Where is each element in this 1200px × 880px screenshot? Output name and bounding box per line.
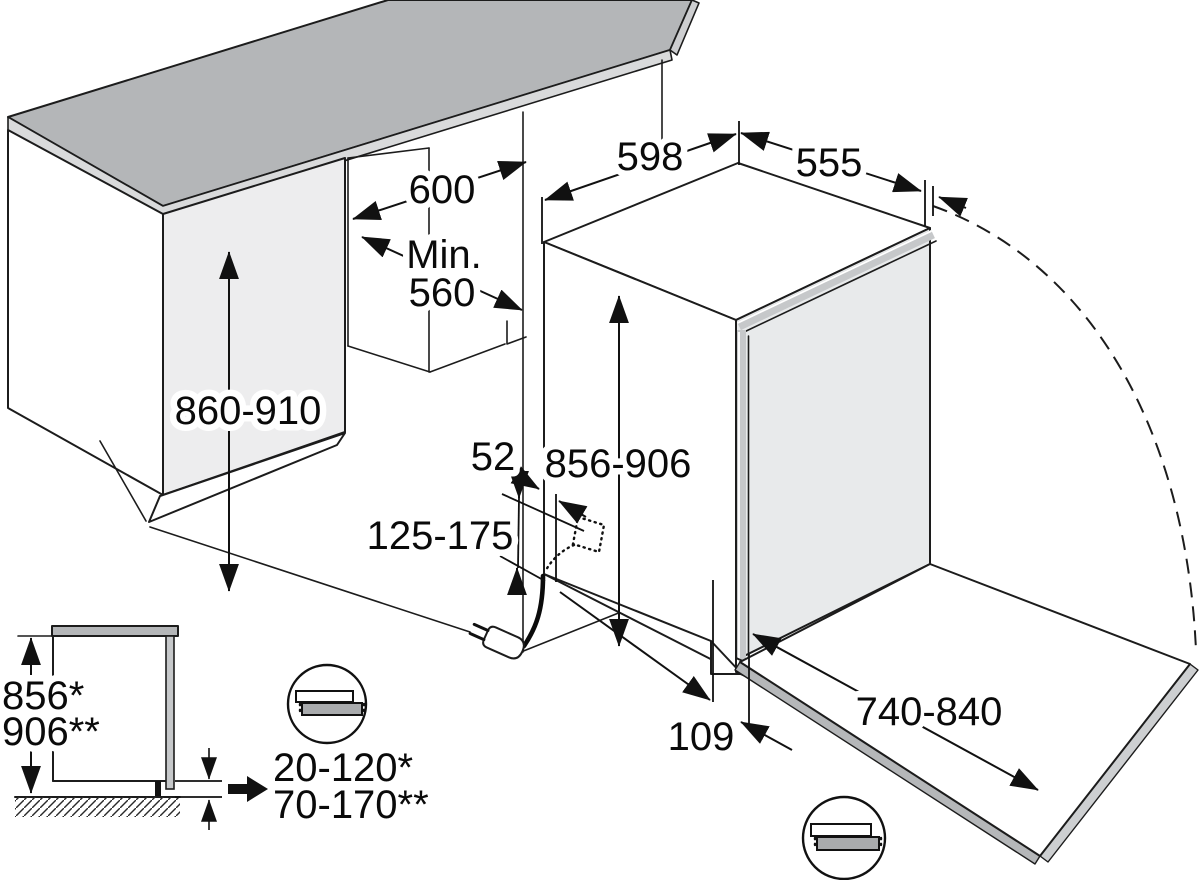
label-niche-width: 600 xyxy=(409,168,476,212)
inset-door-panel xyxy=(166,636,174,789)
dim-109-right xyxy=(741,722,792,750)
label-cord-cutout-height: 125-175 xyxy=(367,514,514,558)
dishwasher-installation-diagram: 598 555 600 Min. 560 860-910 52 856-906 … xyxy=(0,0,1200,880)
callout-furniture-panel xyxy=(296,691,353,702)
power-cord xyxy=(524,576,543,646)
label-door-panel-travel: 740-840 xyxy=(856,690,1003,734)
callout-furniture-panel xyxy=(811,824,871,836)
label-top-width: 598 xyxy=(617,135,684,179)
dim-125-175-line xyxy=(518,498,519,568)
label-cord-side-offset: 52 xyxy=(471,435,516,479)
inset-floor-hatching xyxy=(15,797,180,817)
label-appliance-height: 856-906 xyxy=(545,442,692,486)
label-plinth-height-two-star: 70-170** xyxy=(273,783,429,827)
label-niche-depth-value: 560 xyxy=(409,271,476,315)
inset-plinth-foot xyxy=(155,781,161,797)
callout-plinth-panel xyxy=(817,837,879,850)
inset-worktop xyxy=(52,626,178,636)
label-top-depth: 555 xyxy=(796,141,863,185)
plinth-detail-callout-left xyxy=(288,665,366,743)
power-plug-icon xyxy=(468,619,527,661)
plinth-detail-callout-right xyxy=(803,797,885,879)
callout-plinth-panel xyxy=(302,703,362,715)
installation-diagram-page: 598 555 600 Min. 560 860-910 52 856-906 … xyxy=(0,0,1200,880)
niche-floor-left-edge xyxy=(348,346,430,372)
label-niche-height: 860-910 xyxy=(175,389,322,433)
label-plinth-depth: 109 xyxy=(668,715,735,759)
adjust-direction-arrow-icon xyxy=(228,776,268,802)
label-side-height-two-star: 906** xyxy=(2,710,100,754)
dim-555-counter-arrow xyxy=(939,197,966,208)
niche-floor-front-edge xyxy=(430,344,505,372)
